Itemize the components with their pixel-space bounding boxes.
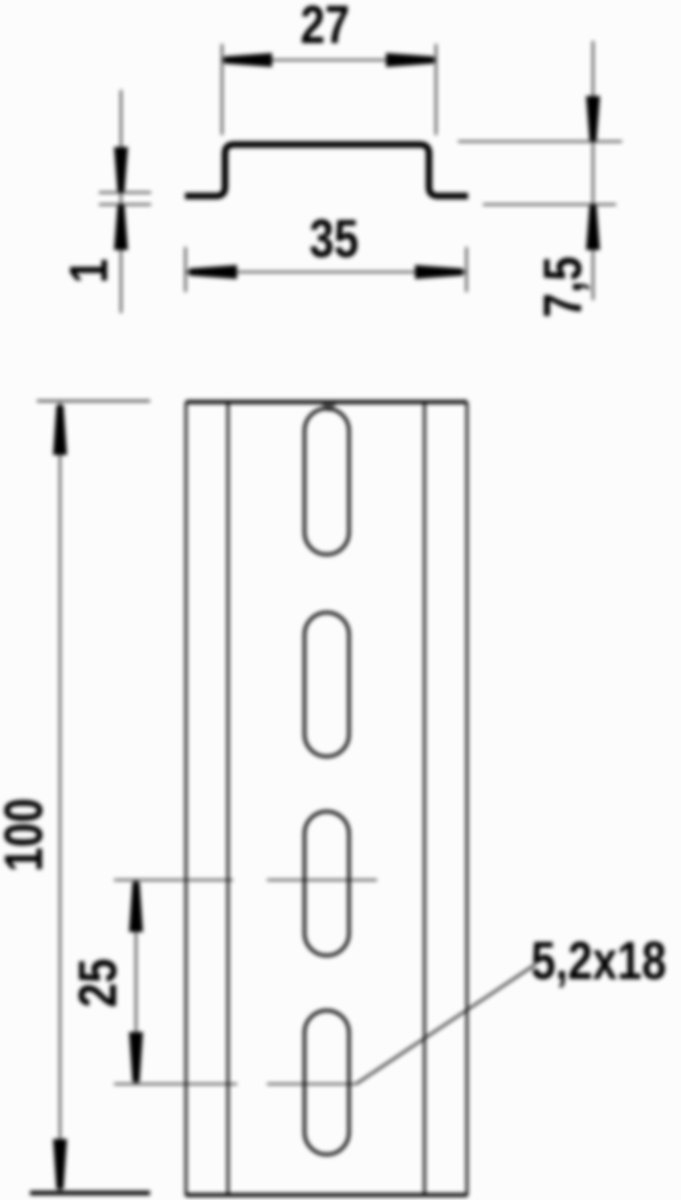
svg-text:1: 1 <box>59 259 119 284</box>
svg-text:27: 27 <box>300 0 349 55</box>
svg-text:35: 35 <box>309 209 358 269</box>
svg-text:25: 25 <box>68 958 128 1007</box>
svg-text:5,2x18: 5,2x18 <box>531 931 666 991</box>
svg-text:7,5: 7,5 <box>533 256 593 318</box>
svg-text:100: 100 <box>0 798 54 872</box>
